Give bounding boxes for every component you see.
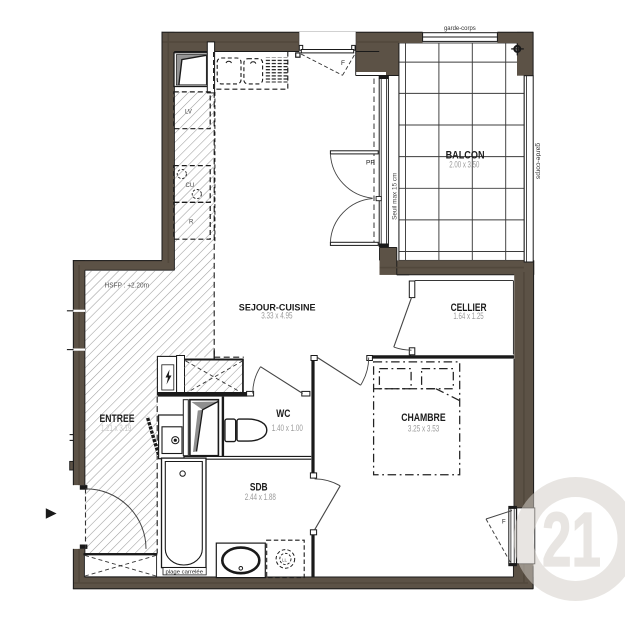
svg-text:1.64 x 1.25: 1.64 x 1.25 bbox=[453, 311, 483, 321]
svg-text:F: F bbox=[341, 60, 345, 67]
svg-text:WC: WC bbox=[276, 408, 290, 420]
svg-text:1.21 x 3.19: 1.21 x 3.19 bbox=[101, 423, 131, 433]
svg-text:plage carrelée: plage carrelée bbox=[166, 570, 204, 576]
svg-text:3.33 x 4.95: 3.33 x 4.95 bbox=[261, 311, 292, 321]
svg-text:HSFP : +2.20m: HSFP : +2.20m bbox=[105, 282, 150, 289]
svg-text:LL: LL bbox=[282, 557, 288, 562]
svg-text:1.40 x 1.00: 1.40 x 1.00 bbox=[272, 423, 303, 433]
svg-text:R: R bbox=[189, 220, 194, 226]
svg-text:2.00 x 3.50: 2.00 x 3.50 bbox=[449, 159, 479, 170]
svg-text:LV: LV bbox=[185, 110, 192, 116]
svg-text:F: F bbox=[502, 520, 506, 526]
svg-text:2.44 x 1.88: 2.44 x 1.88 bbox=[245, 492, 276, 502]
svg-text:PF: PF bbox=[366, 160, 374, 167]
svg-text:21: 21 bbox=[542, 497, 601, 583]
svg-text:Seuil max 15 cm: Seuil max 15 cm bbox=[392, 173, 399, 220]
svg-text:CU: CU bbox=[186, 183, 195, 189]
svg-text:garde-corps: garde-corps bbox=[535, 143, 542, 180]
svg-text:3.25 x 3.53: 3.25 x 3.53 bbox=[408, 423, 439, 433]
svg-text:garde-corps: garde-corps bbox=[444, 25, 476, 32]
